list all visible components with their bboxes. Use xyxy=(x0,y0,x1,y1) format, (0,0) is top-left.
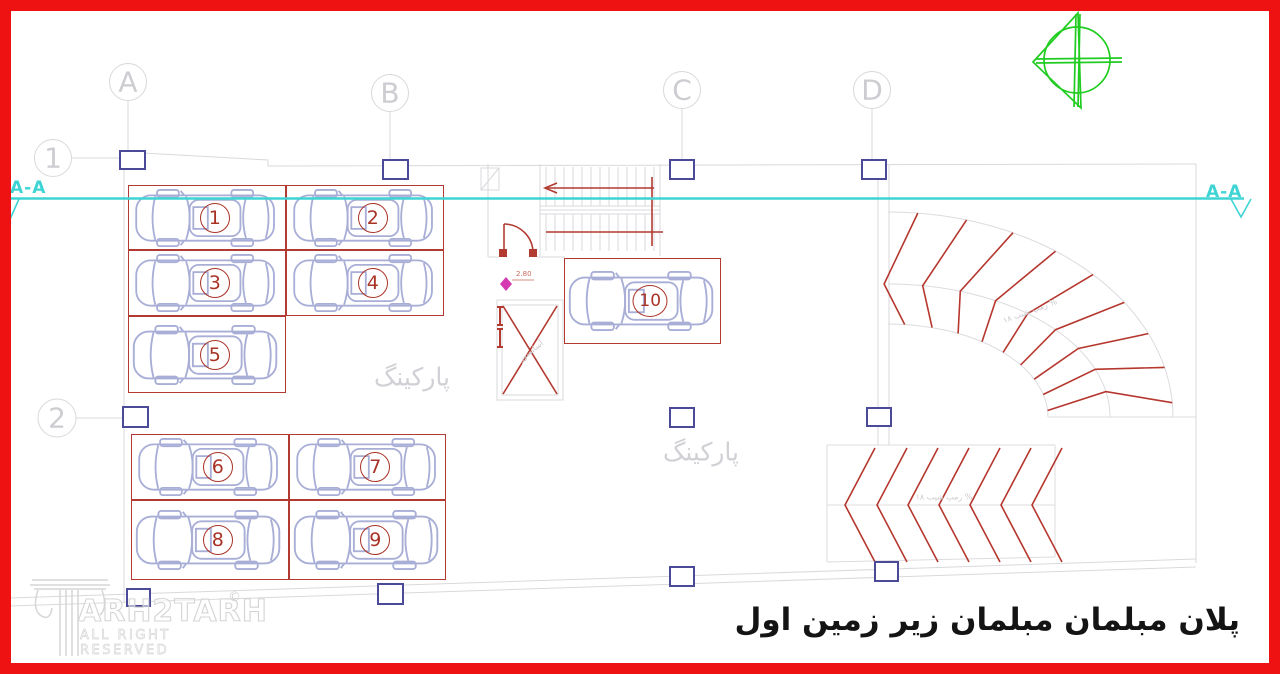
elevator-label: آسانسور xyxy=(517,339,545,364)
door-swing xyxy=(499,224,537,257)
straight-ramp-slope-label: رمپ شیب ۱۸ % xyxy=(916,493,973,502)
section-label-left: A-A xyxy=(10,178,46,198)
parking-space-number: 10 xyxy=(633,285,668,317)
parking-space: 2 xyxy=(286,185,444,250)
curved-ramp xyxy=(884,212,1196,417)
staircase xyxy=(481,164,660,257)
grid-column-label-a: A xyxy=(118,66,137,99)
stair-direction-arrows xyxy=(545,177,663,246)
north-arrow-icon xyxy=(1033,13,1122,108)
grid-column-label-c: C xyxy=(672,74,692,107)
logo-tagline: ALL RIGHT RESERVED xyxy=(80,628,258,658)
parking-space-number: 1 xyxy=(200,203,230,233)
parking-space: 8 xyxy=(131,500,289,580)
parking-space-number: 6 xyxy=(203,452,233,482)
parking-space: 4 xyxy=(286,250,444,316)
level-marker-icon xyxy=(500,277,534,291)
parking-space-number: 4 xyxy=(358,268,388,298)
grid-column-label-b: B xyxy=(380,77,399,110)
parking-space-number: 9 xyxy=(360,525,390,555)
parking-space: 10 xyxy=(564,258,721,344)
parking-space: 7 xyxy=(289,434,446,500)
logo-copyright-icon: © xyxy=(228,590,241,605)
level-marker-value: 2.80 xyxy=(516,270,532,278)
parking-space: 1 xyxy=(128,185,286,250)
curved-ramp-slope-label: رمپ شیب ۱۸ % xyxy=(1002,297,1058,325)
parking-watermark-upper: پارکینگ xyxy=(374,363,450,392)
parking-space-number: 3 xyxy=(200,268,230,298)
parking-space-number: 5 xyxy=(200,340,230,370)
parking-space-number: 8 xyxy=(203,525,233,555)
grid-column-label-d: D xyxy=(861,74,883,107)
floor-plan-sheet: 1 2 3 4 5 6 7 8 9 10 A B C D 1 2 A-A A xyxy=(0,0,1280,674)
grid-row-label-2: 2 xyxy=(48,402,66,435)
parking-space: 5 xyxy=(128,316,286,393)
section-label-right: A-A xyxy=(1206,182,1242,202)
straight-ramp xyxy=(827,445,1062,562)
logo: ARH2TARH © ALL RIGHT RESERVED xyxy=(28,572,258,660)
parking-watermark-lower: پارکینگ xyxy=(663,438,739,467)
parking-space: 9 xyxy=(289,500,446,580)
parking-space-number: 7 xyxy=(360,452,390,482)
parking-space: 6 xyxy=(131,434,289,500)
grid-row-label-1: 1 xyxy=(44,142,62,175)
drawing-title: پلان مبلمان مبلمان زیر زمین اول xyxy=(734,602,1240,638)
parking-space-number: 2 xyxy=(358,203,388,233)
parking-space: 3 xyxy=(128,250,286,316)
